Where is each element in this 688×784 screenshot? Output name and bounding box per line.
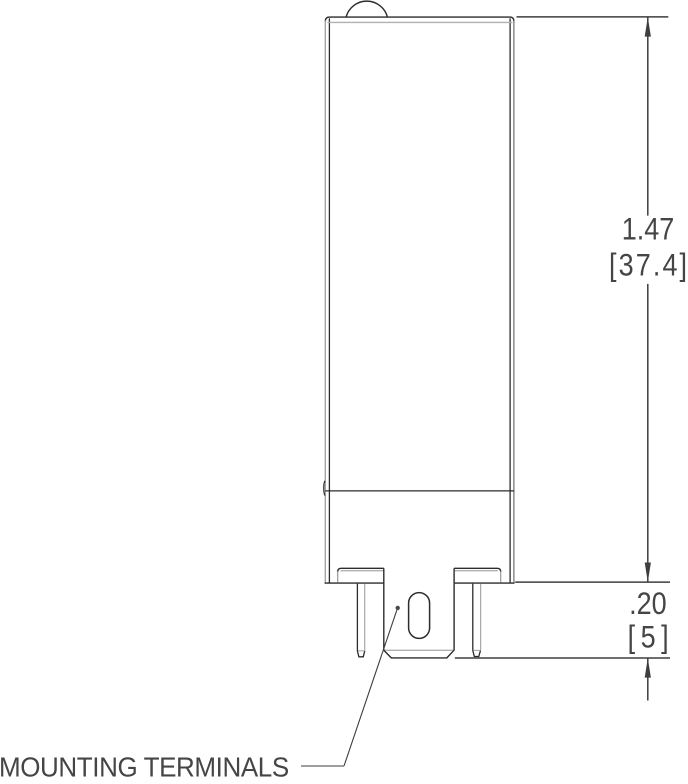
svg-text:1.47: 1.47 — [622, 212, 675, 247]
svg-text:[5]: [5] — [628, 620, 675, 655]
svg-text:[37.4]: [37.4] — [609, 247, 688, 282]
svg-text:.20: .20 — [629, 586, 667, 621]
svg-text:MOUNTING TERMINALS: MOUNTING TERMINALS — [0, 751, 289, 782]
